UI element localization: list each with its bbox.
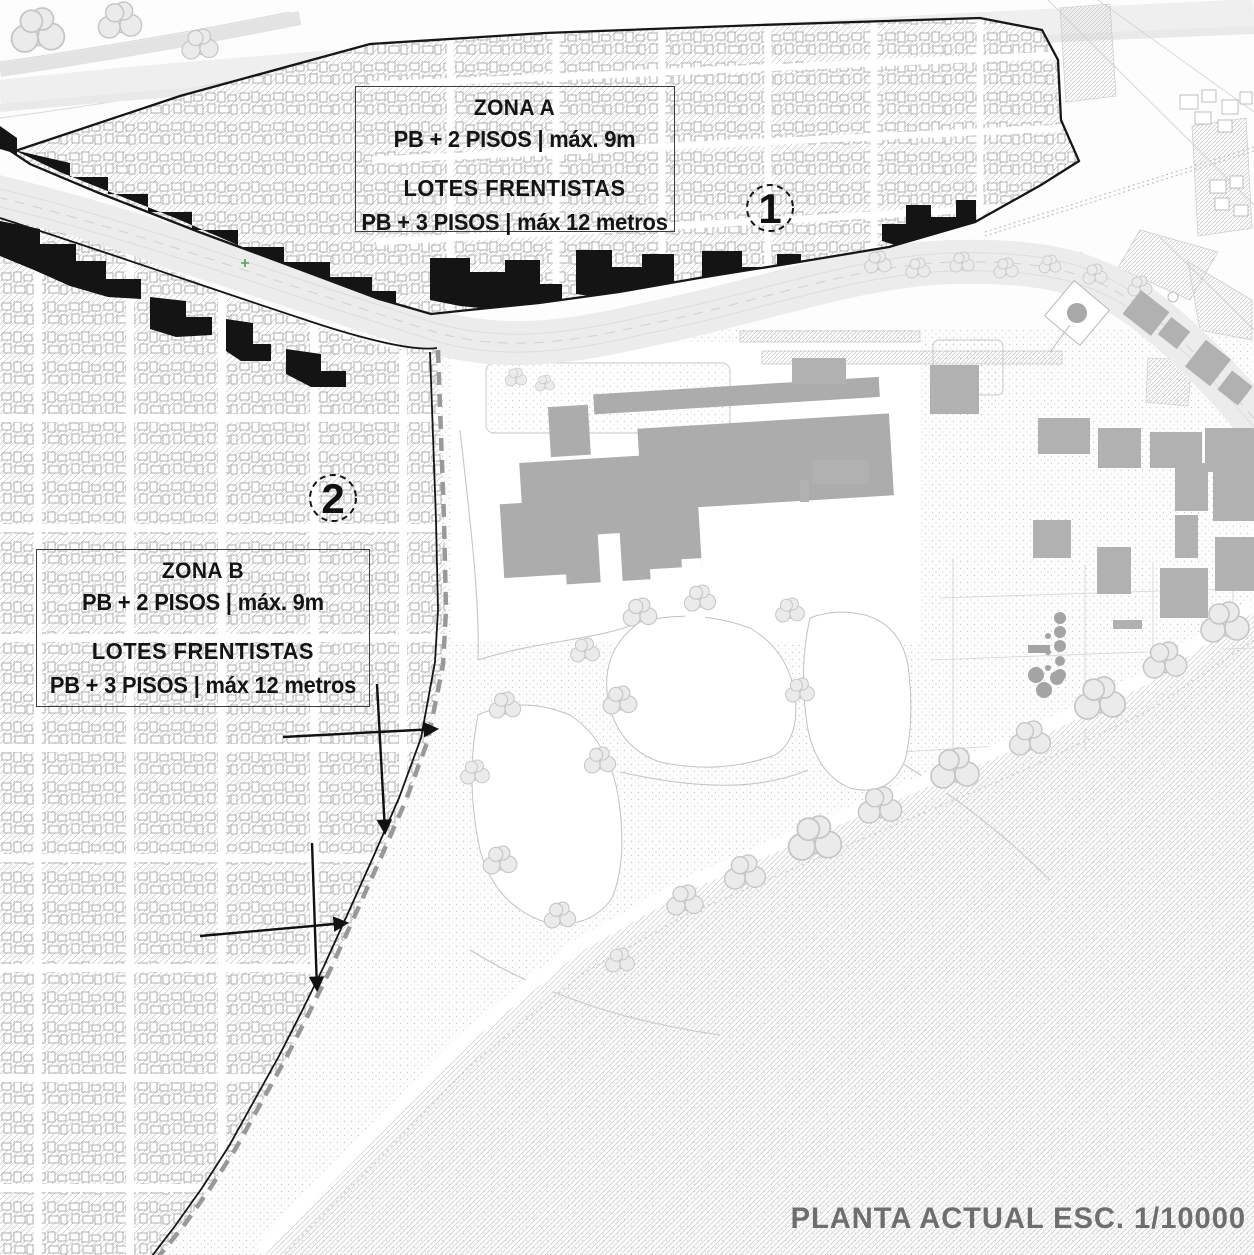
svg-text:2: 2 [321, 475, 344, 522]
edge-building [0, 126, 17, 154]
roundabout [1168, 292, 1178, 302]
svg-text:1: 1 [758, 185, 781, 232]
plan-caption: PLANTA ACTUAL ESC. 1/10000 [775, 1202, 1246, 1236]
map-canvas: 1 2 [0, 0, 1254, 1255]
plan-drawing: 1 2 ZONA A PB + 2 PISOS | máx. 9m LOTES … [0, 0, 1254, 1255]
